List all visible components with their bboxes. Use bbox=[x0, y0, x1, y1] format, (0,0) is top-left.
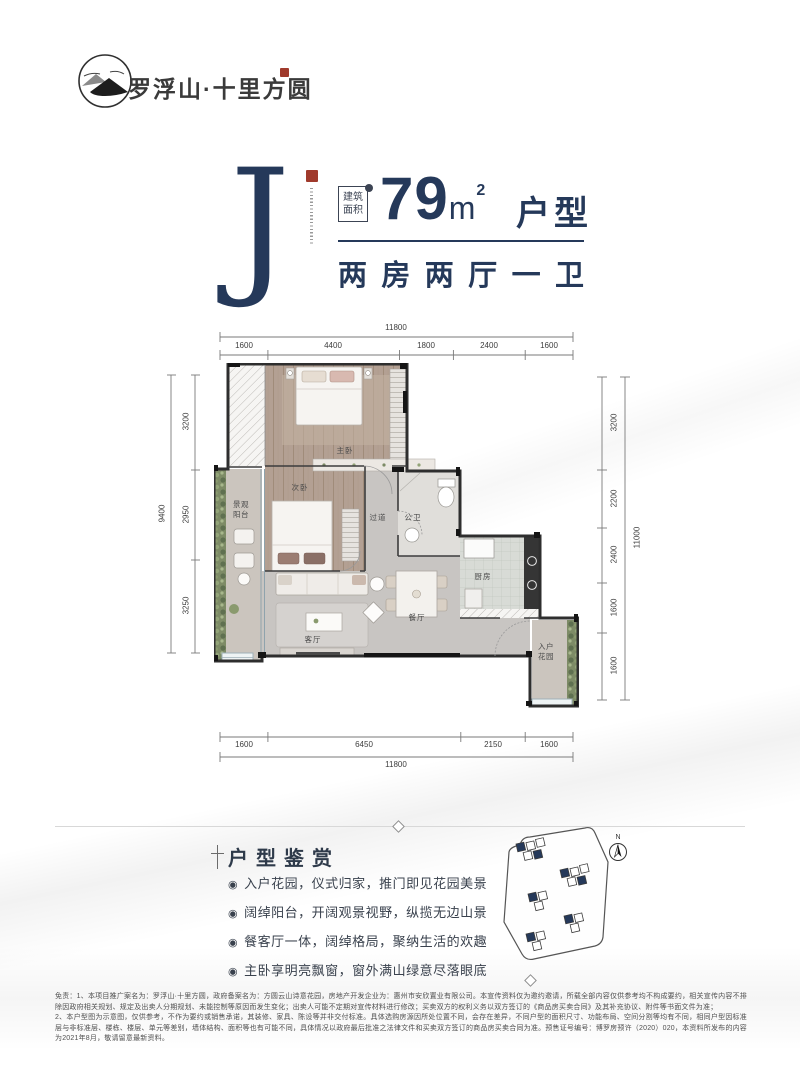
dim-left-seg: 3250 bbox=[182, 576, 191, 636]
dim-left-seg: 2950 bbox=[182, 485, 191, 545]
disclaimer: 免责：1、本项目推广案名为：罗浮山·十里方圆，政府备案名为：方圆云山诗意花园，房… bbox=[55, 992, 747, 1045]
bullet-icon: ◉ bbox=[228, 879, 238, 891]
dim-right-seg: 2400 bbox=[610, 525, 619, 585]
dim-bottom-total: 11800 bbox=[356, 760, 436, 769]
dim-right-seg: 1600 bbox=[610, 636, 619, 696]
dim-right-seg: 2200 bbox=[610, 469, 619, 529]
appreciation-list: ◉入户花园，仪式归家，推门即见花园美景 ◉阔绰阳台，开阔观景视野，纵揽无边山景 … bbox=[228, 876, 487, 992]
dim-top-seg: 1600 bbox=[524, 341, 574, 350]
appreciation-title: 户型鉴赏 bbox=[228, 842, 340, 871]
dim-right-seg: 3200 bbox=[610, 393, 619, 453]
title-crop-mark bbox=[217, 845, 218, 869]
dim-right-seg: 1600 bbox=[610, 578, 619, 638]
area-label-box: 建筑 面积 bbox=[338, 186, 368, 222]
bullet-icon: ◉ bbox=[228, 966, 238, 978]
dim-top-seg: 1800 bbox=[401, 341, 451, 350]
room-label-bath: 公卫 bbox=[393, 512, 433, 523]
room-label-dining: 餐厅 bbox=[397, 612, 437, 623]
unit-area-row: 建筑 面积 79m2 户型 bbox=[338, 170, 584, 236]
title-divider bbox=[338, 240, 584, 242]
dim-top-seg: 2400 bbox=[464, 341, 514, 350]
title-crop-mark bbox=[211, 853, 224, 854]
bullet-icon: ◉ bbox=[228, 937, 238, 949]
dim-bottom-seg: 1600 bbox=[524, 740, 574, 749]
dim-right-total: 11000 bbox=[633, 508, 642, 568]
room-label-master: 主卧 bbox=[325, 445, 365, 456]
dim-left-total: 9400 bbox=[158, 484, 167, 544]
room-label-second: 次卧 bbox=[280, 482, 320, 493]
room-label-hallway: 过道 bbox=[358, 512, 398, 523]
list-item: ◉阔绰阳台，开阔观景视野，纵揽无边山景 bbox=[228, 905, 487, 934]
compass-label: N bbox=[606, 834, 630, 842]
unit-layout: 两房两厅一卫 bbox=[338, 252, 584, 294]
divider-diamond-icon bbox=[392, 820, 405, 833]
unit-seal-microtext bbox=[310, 188, 313, 246]
disclaimer-paragraph: 免责：1、本项目推广案名为：罗浮山·十里方圆，政府备案名为：方圆云山诗意花园，房… bbox=[55, 992, 747, 1013]
list-item: ◉入户花园，仪式归家，推门即见花园美景 bbox=[228, 876, 487, 905]
unit-area-suffix: 户型 bbox=[516, 186, 592, 235]
dim-top-seg: 4400 bbox=[308, 341, 358, 350]
unit-area-value: 79m2 bbox=[380, 164, 486, 233]
bullet-icon: ◉ bbox=[228, 908, 238, 920]
disclaimer-paragraph: 2、本户型图为示意图，仅供参考，不作为要约或销售承诺，其装修、家具、陈设等并非交… bbox=[55, 1013, 747, 1045]
dim-top-seg: 1600 bbox=[219, 341, 269, 350]
area-dot-icon bbox=[365, 184, 373, 192]
siteplan-map bbox=[490, 824, 625, 966]
brand-mountain-logo-icon bbox=[76, 52, 134, 110]
room-label-kitchen: 厨房 bbox=[463, 571, 503, 582]
dim-left-seg: 3200 bbox=[182, 392, 191, 452]
list-item: ◉主卧享明亮飘窗，窗外满山绿意尽落眼底 bbox=[228, 963, 487, 992]
compass-icon: N bbox=[606, 834, 630, 868]
room-label-balcony: 景观阳台 bbox=[227, 500, 255, 520]
dim-bottom-seg: 6450 bbox=[339, 740, 389, 749]
dim-top-total: 11800 bbox=[356, 323, 436, 332]
divider-diamond-icon bbox=[524, 974, 537, 987]
brand-seal-icon bbox=[280, 68, 289, 77]
floorplan: 11800 1600 4400 1800 2400 1600 1600 6450… bbox=[165, 320, 635, 790]
room-label-garden: 入户花园 bbox=[532, 642, 560, 662]
poster-page: 罗浮山·十里方圆 J 建筑 面积 79m2 户型 两房两厅一卫 bbox=[0, 0, 800, 1077]
dim-bottom-seg: 2150 bbox=[468, 740, 518, 749]
room-label-living: 客厅 bbox=[293, 634, 333, 645]
list-item: ◉餐客厅一体，阔绰格局，聚纳生活的欢趣 bbox=[228, 934, 487, 963]
unit-letter: J bbox=[230, 150, 290, 300]
unit-seal-icon bbox=[306, 170, 318, 182]
dim-bottom-seg: 1600 bbox=[219, 740, 269, 749]
floorplan-graphic bbox=[214, 363, 579, 728]
